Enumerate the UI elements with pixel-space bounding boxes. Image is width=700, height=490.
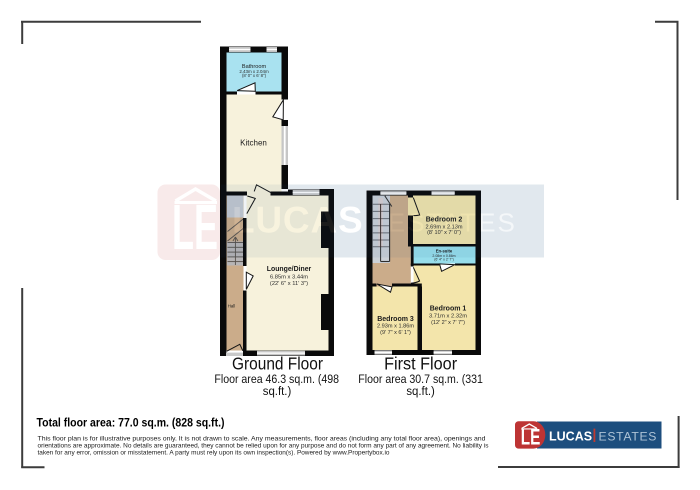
svg-text:ESTATES: ESTATES [599,430,658,444]
svg-text:This floor plan is for illustr: This floor plan is for illustrative purp… [38,436,486,443]
svg-text:taken for any error, omission: taken for any error, omission or misstat… [38,450,390,457]
svg-text:Hall: Hall [228,304,235,309]
svg-text:Ground Floor: Ground Floor [232,354,323,374]
svg-text:Total floor area: 77.0 sq.m. (: Total floor area: 77.0 sq.m. (828 sq.ft.… [37,417,225,430]
svg-text:2.93m x 1.86m: 2.93m x 1.86m [377,324,414,330]
svg-text:(6' 4" x 2' 7"): (6' 4" x 2' 7") [434,257,454,261]
svg-text:orientations are approximate.: orientations are approximate. No details… [38,443,490,450]
svg-text:(9' 7" x 6' 1"): (9' 7" x 6' 1") [380,330,411,336]
svg-text:LUCAS: LUCAS [549,430,592,444]
svg-text:Bedroom 1: Bedroom 1 [430,306,467,313]
svg-text:(12' 2" x 7' 7"): (12' 2" x 7' 7") [431,320,465,326]
svg-text:First Floor: First Floor [384,354,457,374]
svg-text:sq.ft.): sq.ft.) [406,384,435,398]
svg-text:Bedroom 3: Bedroom 3 [377,316,414,323]
svg-text:LUCAS: LUCAS [232,200,363,241]
svg-text:(8' 0" x 6' 8"): (8' 0" x 6' 8") [242,73,267,78]
svg-text:ESTATES: ESTATES [388,208,517,238]
svg-text:6.85m x 3.44m: 6.85m x 3.44m [270,275,308,281]
svg-text:Kitchen: Kitchen [240,139,267,148]
svg-text:Lounge/Diner: Lounge/Diner [267,266,312,273]
svg-text:(22' 6" x 11' 3"): (22' 6" x 11' 3") [270,281,308,287]
svg-text:3.71m x 2.32m: 3.71m x 2.32m [429,314,467,320]
svg-text:sq.ft.): sq.ft.) [263,384,292,398]
